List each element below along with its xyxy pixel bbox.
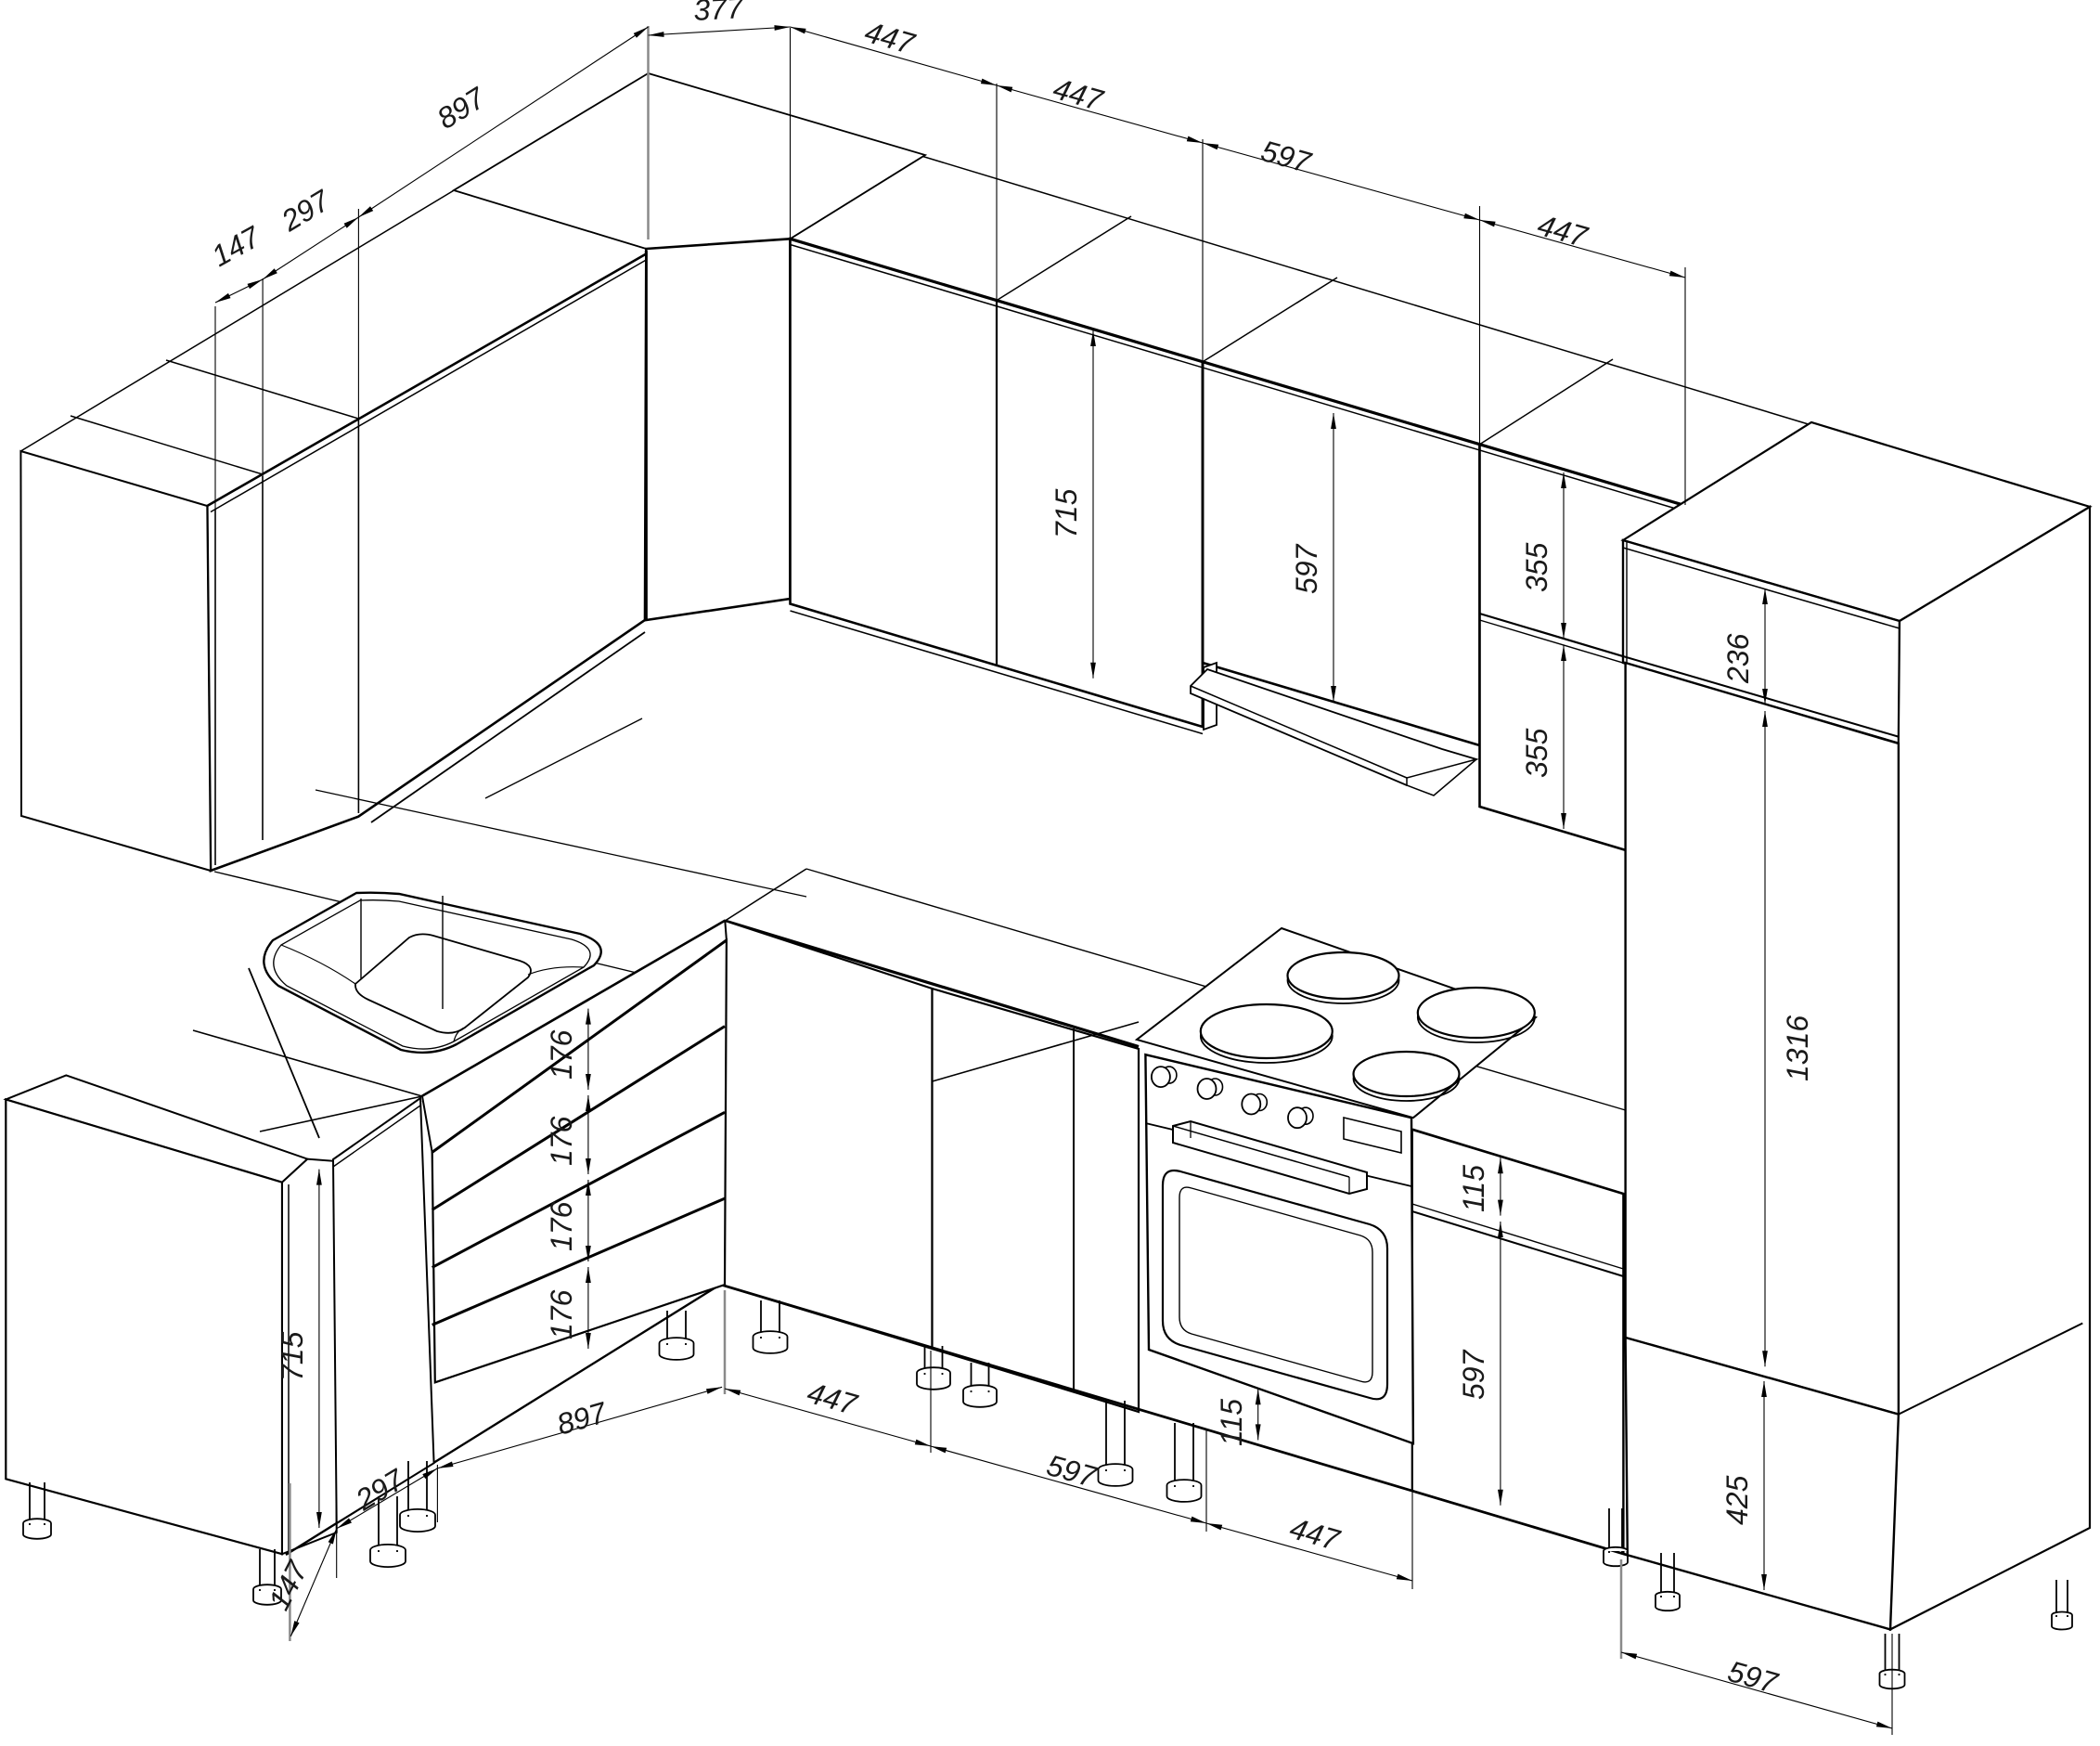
svg-text:236: 236 bbox=[1721, 633, 1755, 684]
svg-text:425: 425 bbox=[1720, 1475, 1754, 1525]
svg-text:355: 355 bbox=[1520, 542, 1553, 592]
svg-text:176: 176 bbox=[545, 1289, 578, 1339]
svg-text:355: 355 bbox=[1520, 728, 1553, 778]
svg-text:176: 176 bbox=[545, 1201, 578, 1251]
svg-text:176: 176 bbox=[545, 1116, 578, 1166]
svg-text:176: 176 bbox=[545, 1029, 578, 1080]
svg-text:115: 115 bbox=[1457, 1165, 1490, 1212]
svg-text:715: 715 bbox=[276, 1331, 309, 1381]
svg-text:597: 597 bbox=[1290, 543, 1323, 594]
svg-text:597: 597 bbox=[1457, 1349, 1490, 1400]
svg-text:715: 715 bbox=[1050, 488, 1083, 538]
svg-text:115: 115 bbox=[1215, 1399, 1248, 1446]
svg-text:377: 377 bbox=[692, 0, 744, 27]
svg-text:1316: 1316 bbox=[1781, 1015, 1814, 1081]
